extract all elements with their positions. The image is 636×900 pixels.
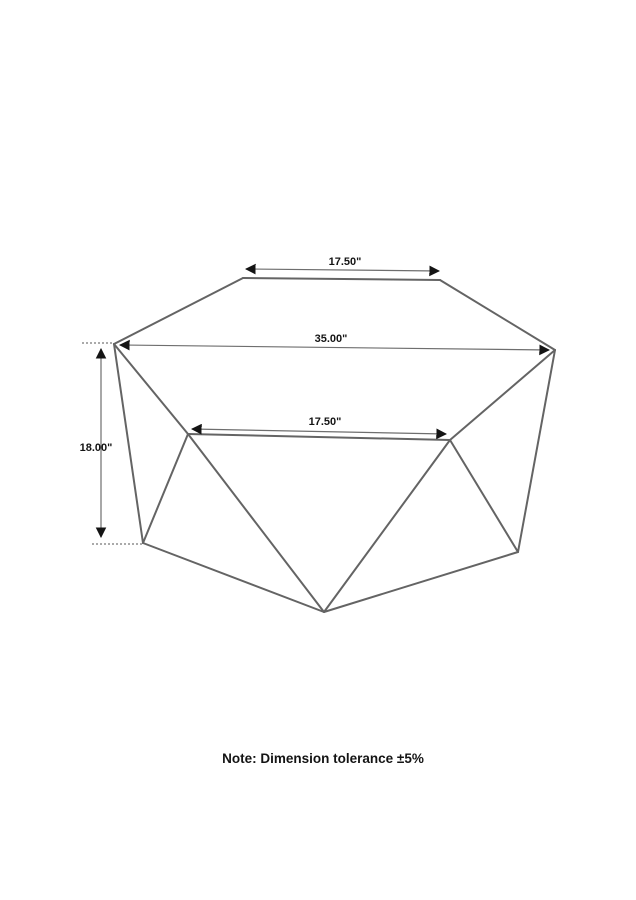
table-edge-tr-r [440, 280, 555, 350]
dimension-label-overall-width: 35.00" [315, 333, 348, 345]
dimension-label-mid-width: 17.50" [309, 416, 342, 428]
table-edge-mr-bc [324, 440, 450, 612]
dimension-line-mid-width [192, 429, 446, 434]
dimension-arrow-lines [101, 269, 549, 537]
table-edge-tl-tr [243, 278, 440, 280]
dimension-label-top-width: 17.50" [329, 256, 362, 268]
table-edge-ml-bl [143, 434, 188, 543]
table-edge-mr-br [450, 440, 518, 552]
furniture-dimension-diagram: 17.50"35.00"17.50"18.00" Note: Dimension… [0, 0, 636, 900]
table-edge-bc-br [324, 552, 518, 612]
dimension-label-height: 18.00" [80, 442, 113, 454]
table-edge-ml-mr [188, 434, 450, 440]
table-edge-r-br [518, 350, 555, 552]
table-edge-r-mr [450, 350, 555, 440]
dimension-line-overall-width [120, 345, 549, 350]
diagram-page: 17.50"35.00"17.50"18.00" Note: Dimension… [0, 0, 636, 900]
table-edge-l-tl [114, 278, 243, 344]
table-outline-edges [114, 278, 555, 612]
tolerance-note: Note: Dimension tolerance ±5% [222, 751, 424, 766]
dimension-line-top-width [246, 269, 439, 271]
